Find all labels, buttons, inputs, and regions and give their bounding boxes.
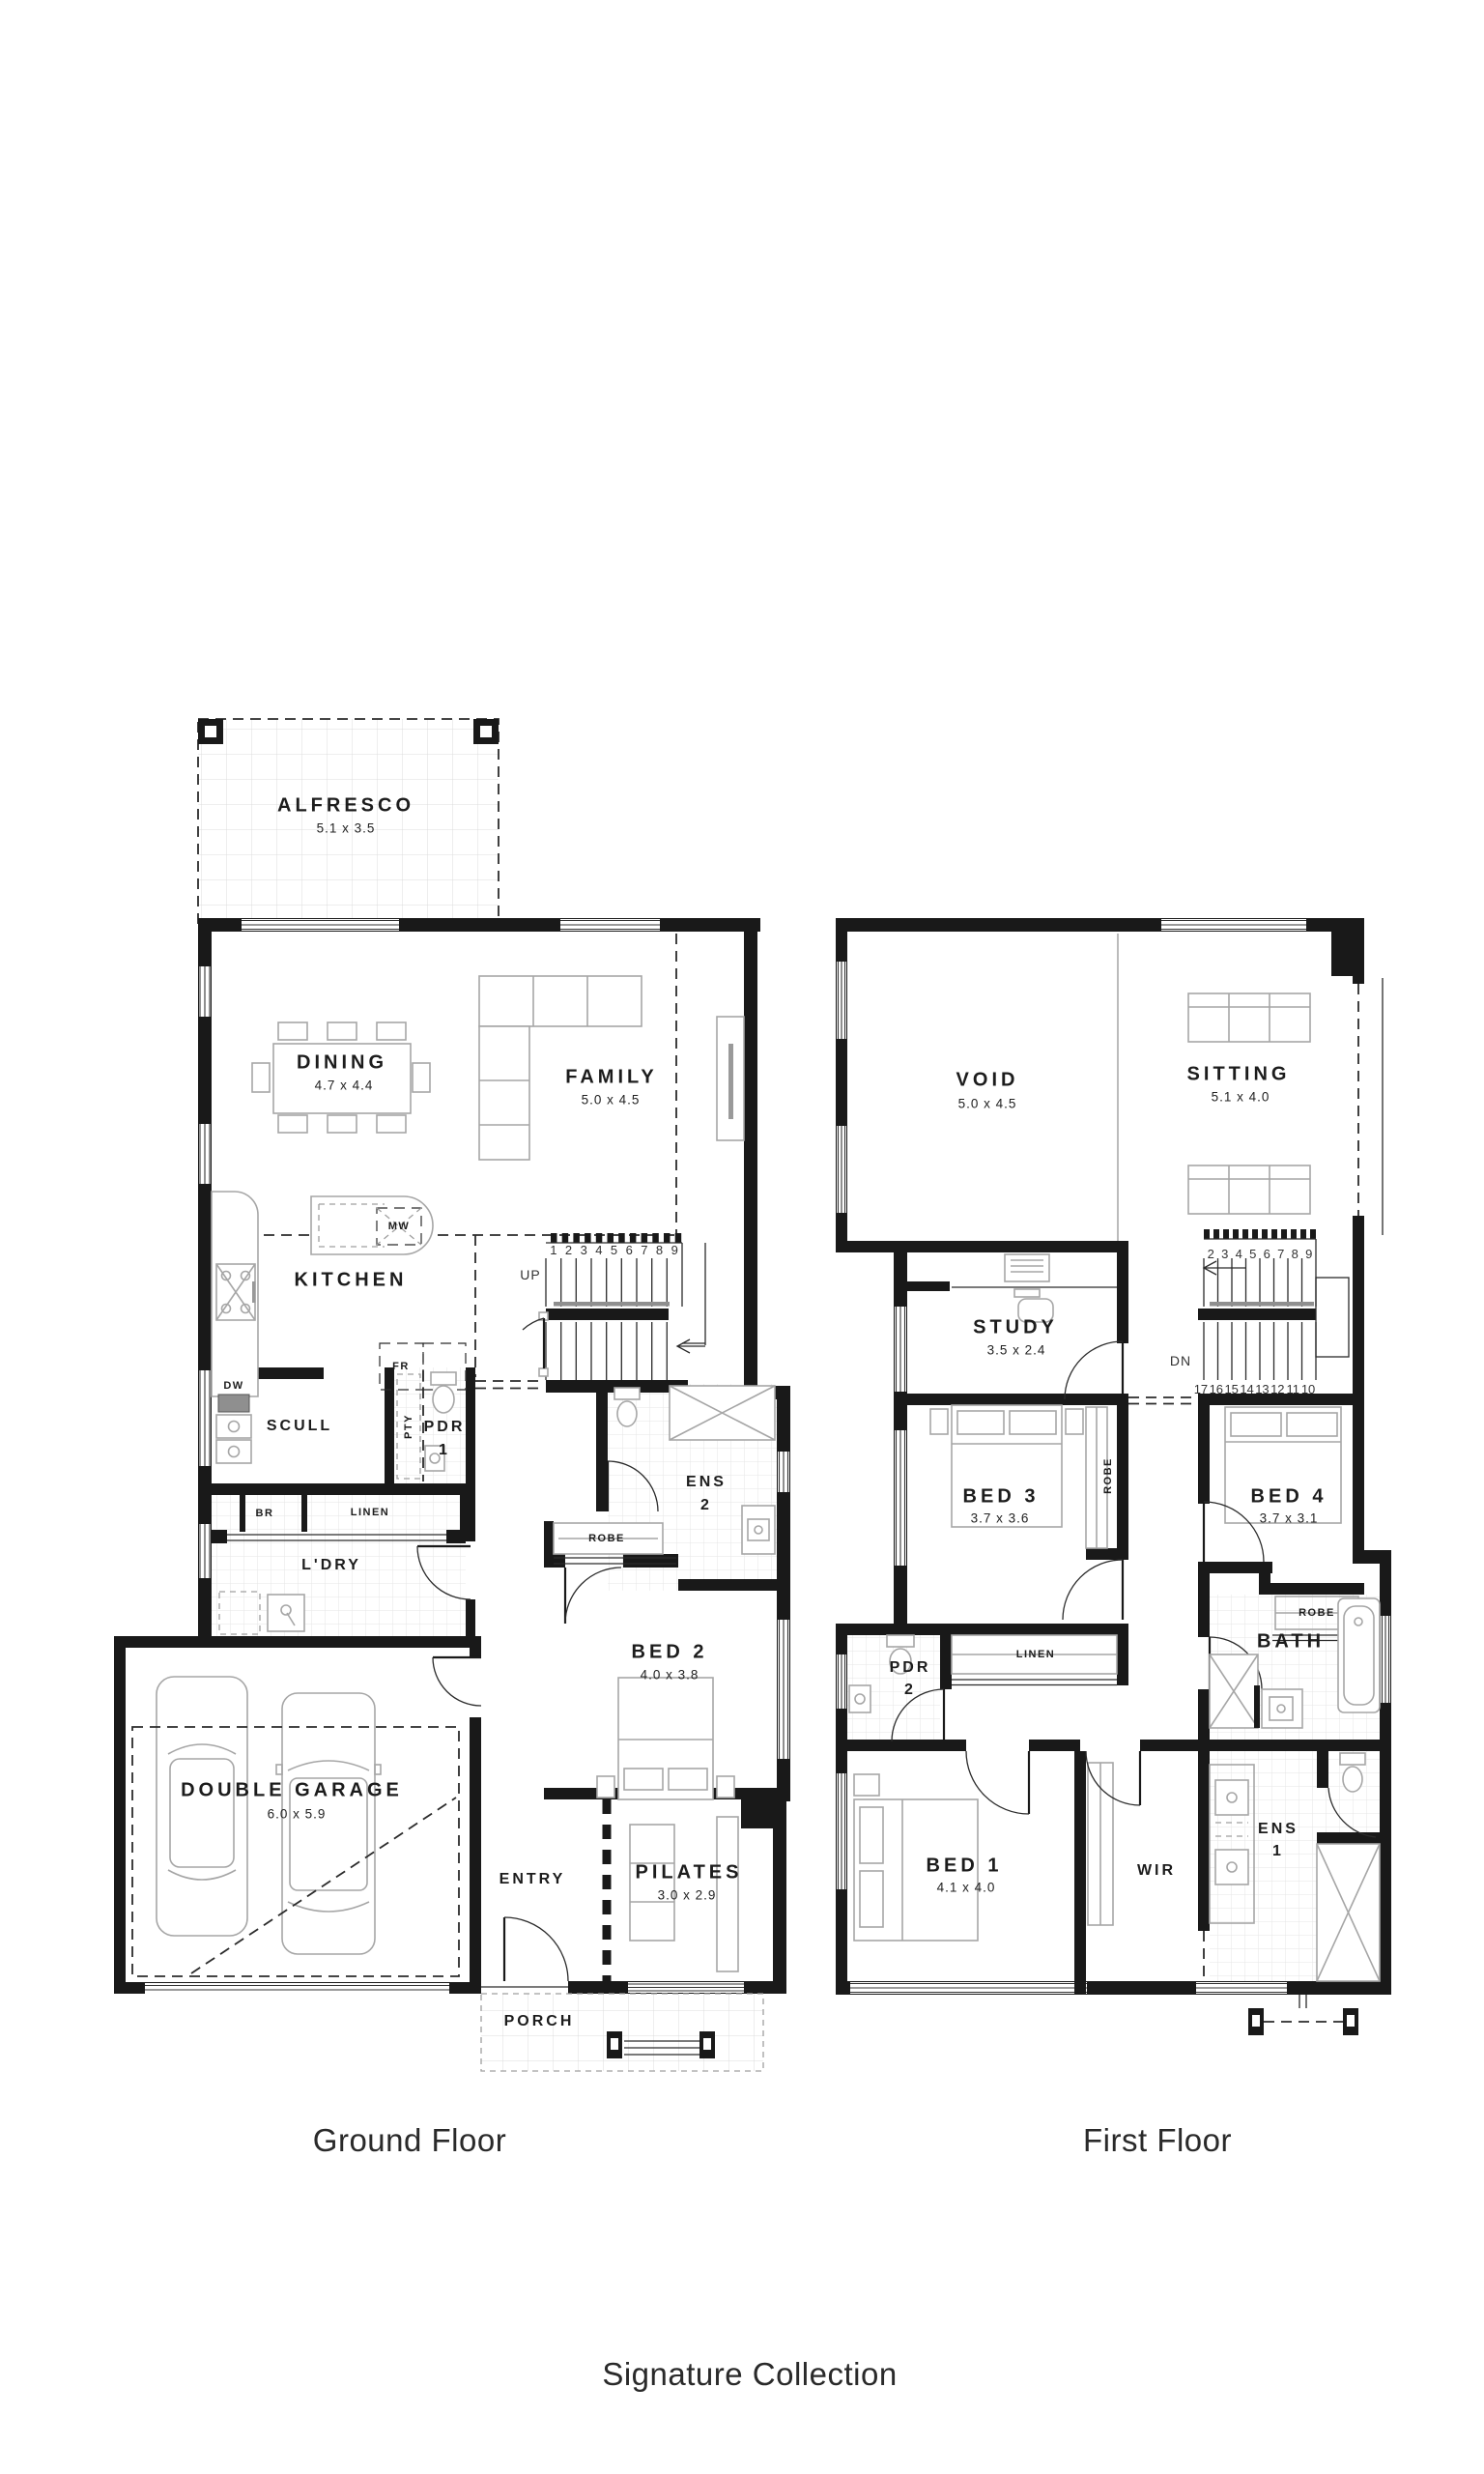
room-number-pdr2: 2 bbox=[904, 1682, 916, 1699]
label-robe-bed3: ROBE bbox=[1102, 1457, 1114, 1494]
stairs-direction-up: UP bbox=[520, 1267, 540, 1282]
first-floor-title: First Floor bbox=[1083, 2122, 1232, 2159]
room-label-entry: ENTRY bbox=[499, 1871, 566, 1888]
label-robe-bed4: ROBE bbox=[1298, 1607, 1335, 1619]
room-dims-sitting: 5.1 x 4.0 bbox=[1212, 1090, 1270, 1105]
room-label-bed4: BED 4 bbox=[1251, 1486, 1327, 1509]
appliance-label-dishwasher: DW bbox=[223, 1380, 243, 1392]
floorplan-drawing bbox=[0, 0, 1484, 2474]
first-stair-numbers-upper: 23456789 bbox=[1204, 1247, 1316, 1261]
room-label-bed3: BED 3 bbox=[963, 1486, 1040, 1509]
first-stair-numbers-lower: 1716151413121110 bbox=[1193, 1382, 1316, 1396]
room-dims-garage: 6.0 x 5.9 bbox=[268, 1807, 327, 1822]
ground-floor-title: Ground Floor bbox=[313, 2122, 506, 2159]
room-dims-alfresco: 5.1 x 3.5 bbox=[317, 821, 376, 836]
room-dims-dining: 4.7 x 4.4 bbox=[315, 1079, 374, 1093]
label-linen-first: LINEN bbox=[1016, 1649, 1056, 1660]
room-label-wir: WIR bbox=[1137, 1862, 1176, 1880]
label-robe-bed2: ROBE bbox=[588, 1533, 625, 1544]
room-dims-study: 3.5 x 2.4 bbox=[987, 1343, 1046, 1358]
appliance-label-fridge: FR bbox=[392, 1361, 410, 1372]
room-label-ens2: ENS bbox=[686, 1474, 727, 1491]
room-label-void: VOID bbox=[956, 1070, 1019, 1092]
room-dims-pilates: 3.0 x 2.9 bbox=[658, 1888, 717, 1903]
label-linen-ground: LINEN bbox=[351, 1507, 390, 1518]
room-label-bed2: BED 2 bbox=[632, 1642, 708, 1664]
room-number-pdr1: 1 bbox=[439, 1442, 450, 1459]
room-label-kitchen: KITCHEN bbox=[295, 1270, 408, 1292]
appliance-label-microwave: MW bbox=[388, 1221, 411, 1232]
floorplan-page: { "brand": {"collection": "Signature Col… bbox=[0, 0, 1484, 2474]
room-label-bed1: BED 1 bbox=[927, 1855, 1003, 1878]
room-dims-bed4: 3.7 x 3.1 bbox=[1260, 1511, 1319, 1526]
label-broom-cupboard: BR bbox=[256, 1508, 274, 1519]
room-label-porch: PORCH bbox=[504, 2013, 575, 2030]
room-label-study: STUDY bbox=[973, 1317, 1058, 1339]
room-dims-family: 5.0 x 4.5 bbox=[582, 1093, 641, 1108]
collection-brand-title: Signature Collection bbox=[602, 2356, 897, 2393]
room-dims-bed1: 4.1 x 4.0 bbox=[937, 1881, 996, 1895]
room-label-pilates: PILATES bbox=[636, 1862, 743, 1884]
room-dims-void: 5.0 x 4.5 bbox=[958, 1097, 1017, 1111]
room-label-pdr2: PDR bbox=[890, 1659, 931, 1677]
room-label-sitting: SITTING bbox=[1187, 1064, 1291, 1086]
room-label-alfresco: ALFRESCO bbox=[277, 795, 414, 818]
room-label-pdr1: PDR bbox=[424, 1419, 466, 1436]
room-label-ens1: ENS bbox=[1258, 1821, 1298, 1838]
ground-stair-numbers: 123456789 bbox=[546, 1243, 682, 1257]
room-dims-bed3: 3.7 x 3.6 bbox=[971, 1511, 1030, 1526]
room-number-ens1: 1 bbox=[1272, 1843, 1284, 1860]
room-label-family: FAMILY bbox=[565, 1067, 658, 1089]
room-label-pantry: PTY bbox=[403, 1414, 414, 1439]
room-label-laundry: L'DRY bbox=[301, 1557, 361, 1574]
room-number-ens2: 2 bbox=[700, 1497, 712, 1514]
room-label-garage: DOUBLE GARAGE bbox=[181, 1780, 403, 1802]
room-label-bath: BATH bbox=[1257, 1631, 1325, 1654]
stairs-direction-down: DN bbox=[1170, 1353, 1191, 1368]
room-label-scullery: SCULL bbox=[267, 1418, 332, 1435]
room-dims-bed2: 4.0 x 3.8 bbox=[641, 1668, 699, 1683]
room-label-dining: DINING bbox=[297, 1052, 387, 1075]
